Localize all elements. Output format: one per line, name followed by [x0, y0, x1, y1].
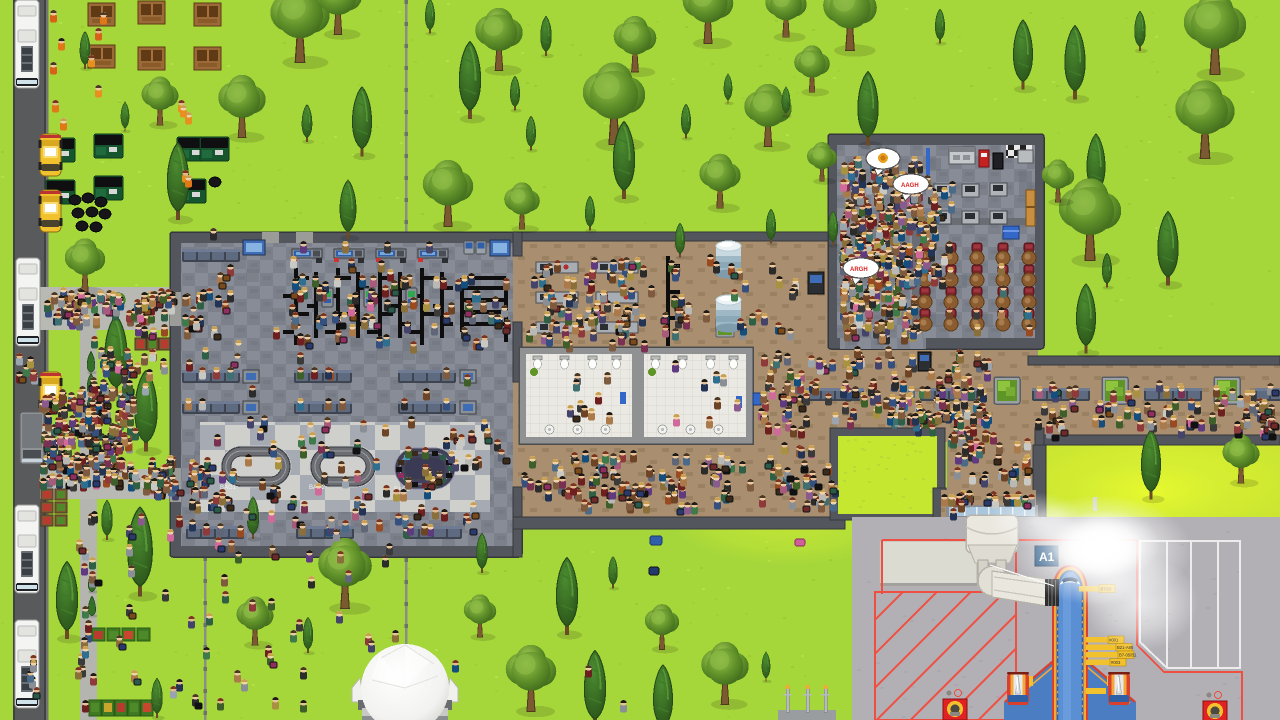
svg-text:#003: #003: [1111, 660, 1121, 665]
svg-text:ARGH: ARGH: [850, 267, 868, 273]
svg-text:B7-05/B1: B7-05/B1: [1119, 653, 1137, 658]
svg-text:AAGH: AAGH: [901, 183, 919, 189]
